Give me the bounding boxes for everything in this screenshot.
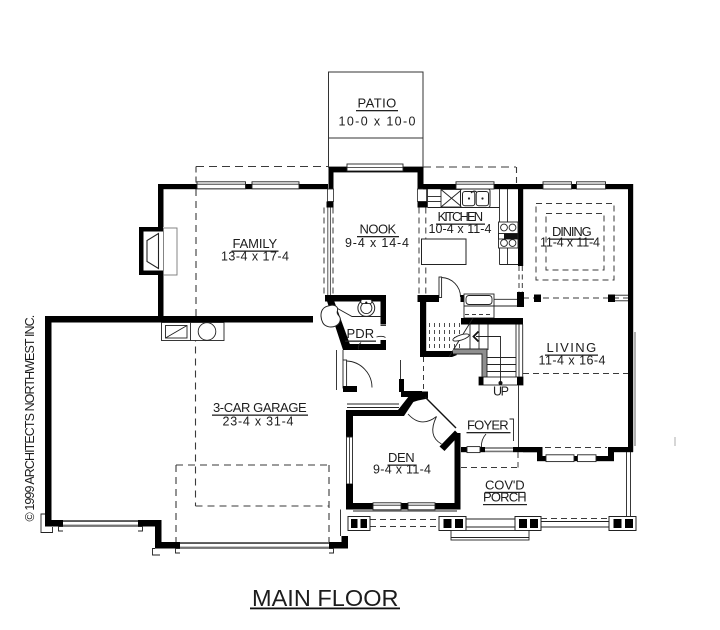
svg-text:MAIN FLOOR: MAIN FLOOR <box>252 585 400 611</box>
svg-text:PATIO: PATIO <box>358 96 397 111</box>
svg-text:23-4 x 31-4: 23-4 x 31-4 <box>223 415 294 429</box>
svg-text:13-4 x 17-4: 13-4 x 17-4 <box>221 250 289 264</box>
svg-text:PORCH: PORCH <box>483 490 527 505</box>
svg-text:UP: UP <box>493 385 509 399</box>
svg-text:11-4 x 11-4: 11-4 x 11-4 <box>540 236 600 250</box>
svg-text:10-0 x 10-0: 10-0 x 10-0 <box>339 115 416 129</box>
svg-text:10-4 x 11-4: 10-4 x 11-4 <box>429 222 492 236</box>
svg-text:11-4 x 16-4: 11-4 x 16-4 <box>539 354 606 368</box>
svg-text:NOOK: NOOK <box>360 222 397 237</box>
svg-text:3-CAR GARAGE: 3-CAR GARAGE <box>213 400 307 415</box>
svg-text:9-4 x 14-4: 9-4 x 14-4 <box>345 236 409 250</box>
svg-text:PDR: PDR <box>347 326 375 341</box>
svg-text:© 1999 ARCHITECTS NORTHWEST IN: © 1999 ARCHITECTS NORTHWEST INC. <box>23 315 37 522</box>
svg-text:FOYER: FOYER <box>467 418 509 433</box>
svg-text:9-4 x 11-4: 9-4 x 11-4 <box>373 463 431 477</box>
